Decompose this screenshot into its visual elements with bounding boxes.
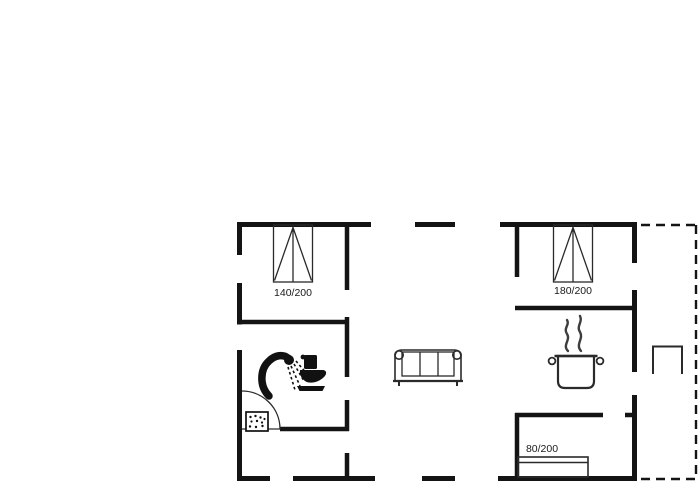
floorplan-canvas: 140/200 180/200 80/200 bbox=[0, 0, 700, 500]
sofa-icon bbox=[393, 350, 463, 386]
floor-drain-icon bbox=[246, 412, 268, 431]
bed-180-icon bbox=[554, 225, 593, 282]
cooking-pot-icon bbox=[549, 316, 604, 388]
floorplan-drawing: 140/200 180/200 80/200 bbox=[0, 0, 700, 500]
pot-body bbox=[558, 356, 594, 388]
grill-icon bbox=[653, 347, 682, 375]
bed-180-label: 180/200 bbox=[554, 285, 592, 297]
pot-handle-right bbox=[597, 358, 604, 365]
steam-icon bbox=[566, 316, 581, 351]
bed-80-icon bbox=[518, 457, 588, 477]
terrace-dashed-border bbox=[641, 225, 696, 479]
toilet-icon bbox=[297, 355, 326, 391]
bed-symbols bbox=[274, 225, 593, 477]
pot-handle-left bbox=[549, 358, 556, 365]
bed-140-label: 140/200 bbox=[274, 287, 312, 299]
terrace-outline bbox=[641, 225, 696, 479]
bed-80-label: 80/200 bbox=[526, 443, 558, 455]
bed-140-icon bbox=[274, 225, 313, 282]
